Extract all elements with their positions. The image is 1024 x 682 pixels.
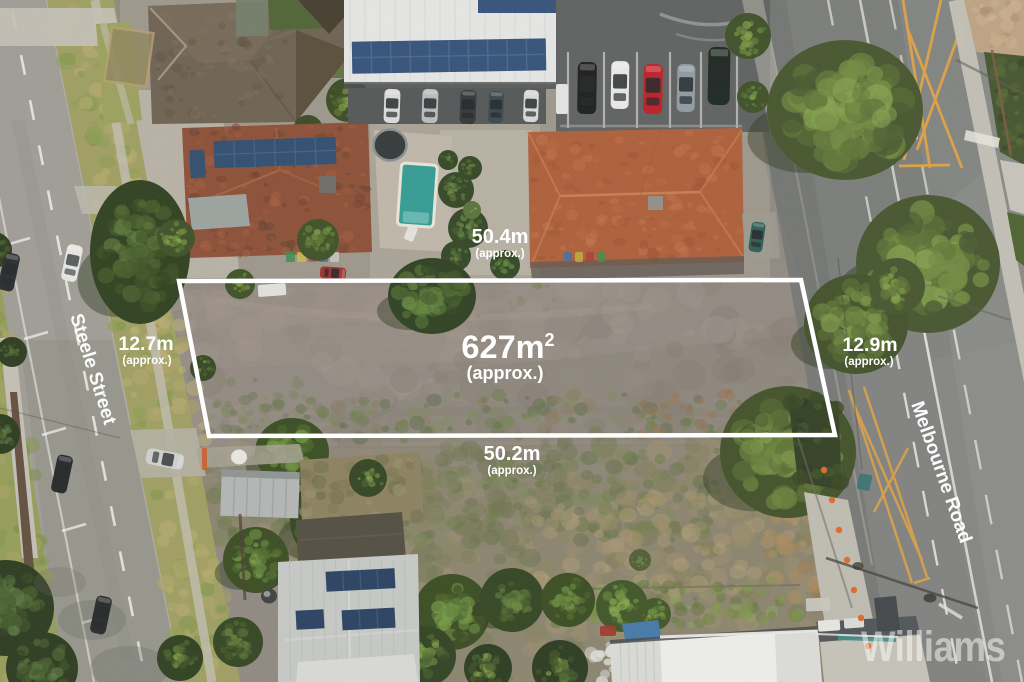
svg-text:50.2m: 50.2m [484,443,541,465]
svg-text:(approx.): (approx.) [844,356,893,368]
svg-text:(approx.): (approx.) [487,465,536,477]
svg-text:(approx.): (approx.) [466,363,543,383]
svg-text:(approx.): (approx.) [475,248,524,260]
svg-text:50.4m: 50.4m [472,226,529,248]
svg-text:Williams: Williams [861,623,1005,670]
svg-text:12.7m: 12.7m [118,333,173,355]
svg-text:(approx.): (approx.) [122,355,171,367]
svg-text:627m2: 627m2 [461,329,554,365]
svg-text:12.9m: 12.9m [842,334,897,356]
